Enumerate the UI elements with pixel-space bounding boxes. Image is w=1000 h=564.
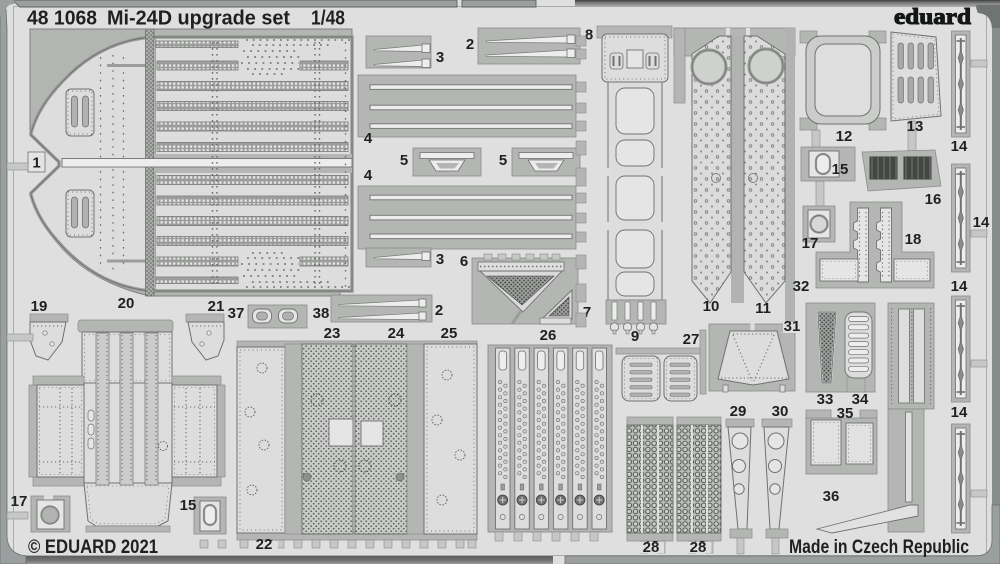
svg-text:Made in Czech Republic: Made in Czech Republic [789, 537, 969, 558]
svg-text:27: 27 [683, 331, 700, 348]
svg-text:9: 9 [631, 328, 639, 345]
svg-text:14: 14 [973, 214, 990, 231]
svg-text:© EDUARD 2021: © EDUARD 2021 [28, 537, 158, 558]
svg-text:21: 21 [208, 298, 225, 315]
svg-text:4: 4 [364, 167, 373, 184]
svg-text:4: 4 [364, 130, 373, 147]
svg-text:15: 15 [832, 161, 849, 178]
svg-text:3: 3 [436, 49, 444, 66]
svg-text:eduard: eduard [894, 4, 971, 29]
svg-text:1: 1 [32, 155, 40, 172]
svg-text:19: 19 [31, 298, 48, 315]
svg-text:17: 17 [802, 235, 819, 252]
svg-text:33: 33 [817, 391, 834, 408]
svg-text:32: 32 [793, 278, 810, 295]
svg-text:25: 25 [441, 325, 458, 342]
svg-text:34: 34 [852, 391, 869, 408]
svg-text:Mi-24D upgrade set: Mi-24D upgrade set [107, 8, 290, 30]
svg-text:2: 2 [435, 302, 443, 319]
svg-text:2: 2 [466, 36, 474, 53]
svg-text:31: 31 [784, 318, 801, 335]
svg-text:13: 13 [907, 118, 924, 135]
svg-text:20: 20 [118, 295, 135, 312]
svg-text:30: 30 [772, 403, 789, 420]
svg-text:17: 17 [11, 493, 28, 510]
svg-text:35: 35 [837, 405, 854, 422]
svg-text:12: 12 [836, 128, 853, 145]
svg-text:36: 36 [823, 488, 840, 505]
svg-text:18: 18 [905, 231, 922, 248]
svg-text:22: 22 [256, 536, 273, 553]
svg-text:3: 3 [436, 251, 444, 268]
svg-text:28: 28 [643, 539, 660, 556]
svg-text:16: 16 [925, 191, 942, 208]
svg-text:37: 37 [228, 305, 245, 322]
svg-text:14: 14 [951, 138, 968, 155]
svg-text:5: 5 [499, 152, 507, 169]
svg-text:24: 24 [388, 325, 405, 342]
svg-text:10: 10 [703, 298, 720, 315]
svg-text:48 1068: 48 1068 [27, 8, 97, 30]
svg-text:28: 28 [690, 539, 707, 556]
svg-text:1/48: 1/48 [311, 8, 345, 30]
svg-text:26: 26 [540, 327, 557, 344]
svg-text:23: 23 [324, 325, 341, 342]
svg-text:15: 15 [180, 497, 197, 514]
svg-text:6: 6 [460, 253, 468, 270]
svg-text:5: 5 [400, 152, 408, 169]
svg-text:11: 11 [755, 300, 771, 317]
svg-text:38: 38 [313, 305, 330, 322]
svg-text:14: 14 [951, 278, 968, 295]
svg-text:29: 29 [730, 403, 747, 420]
svg-text:14: 14 [951, 404, 968, 421]
